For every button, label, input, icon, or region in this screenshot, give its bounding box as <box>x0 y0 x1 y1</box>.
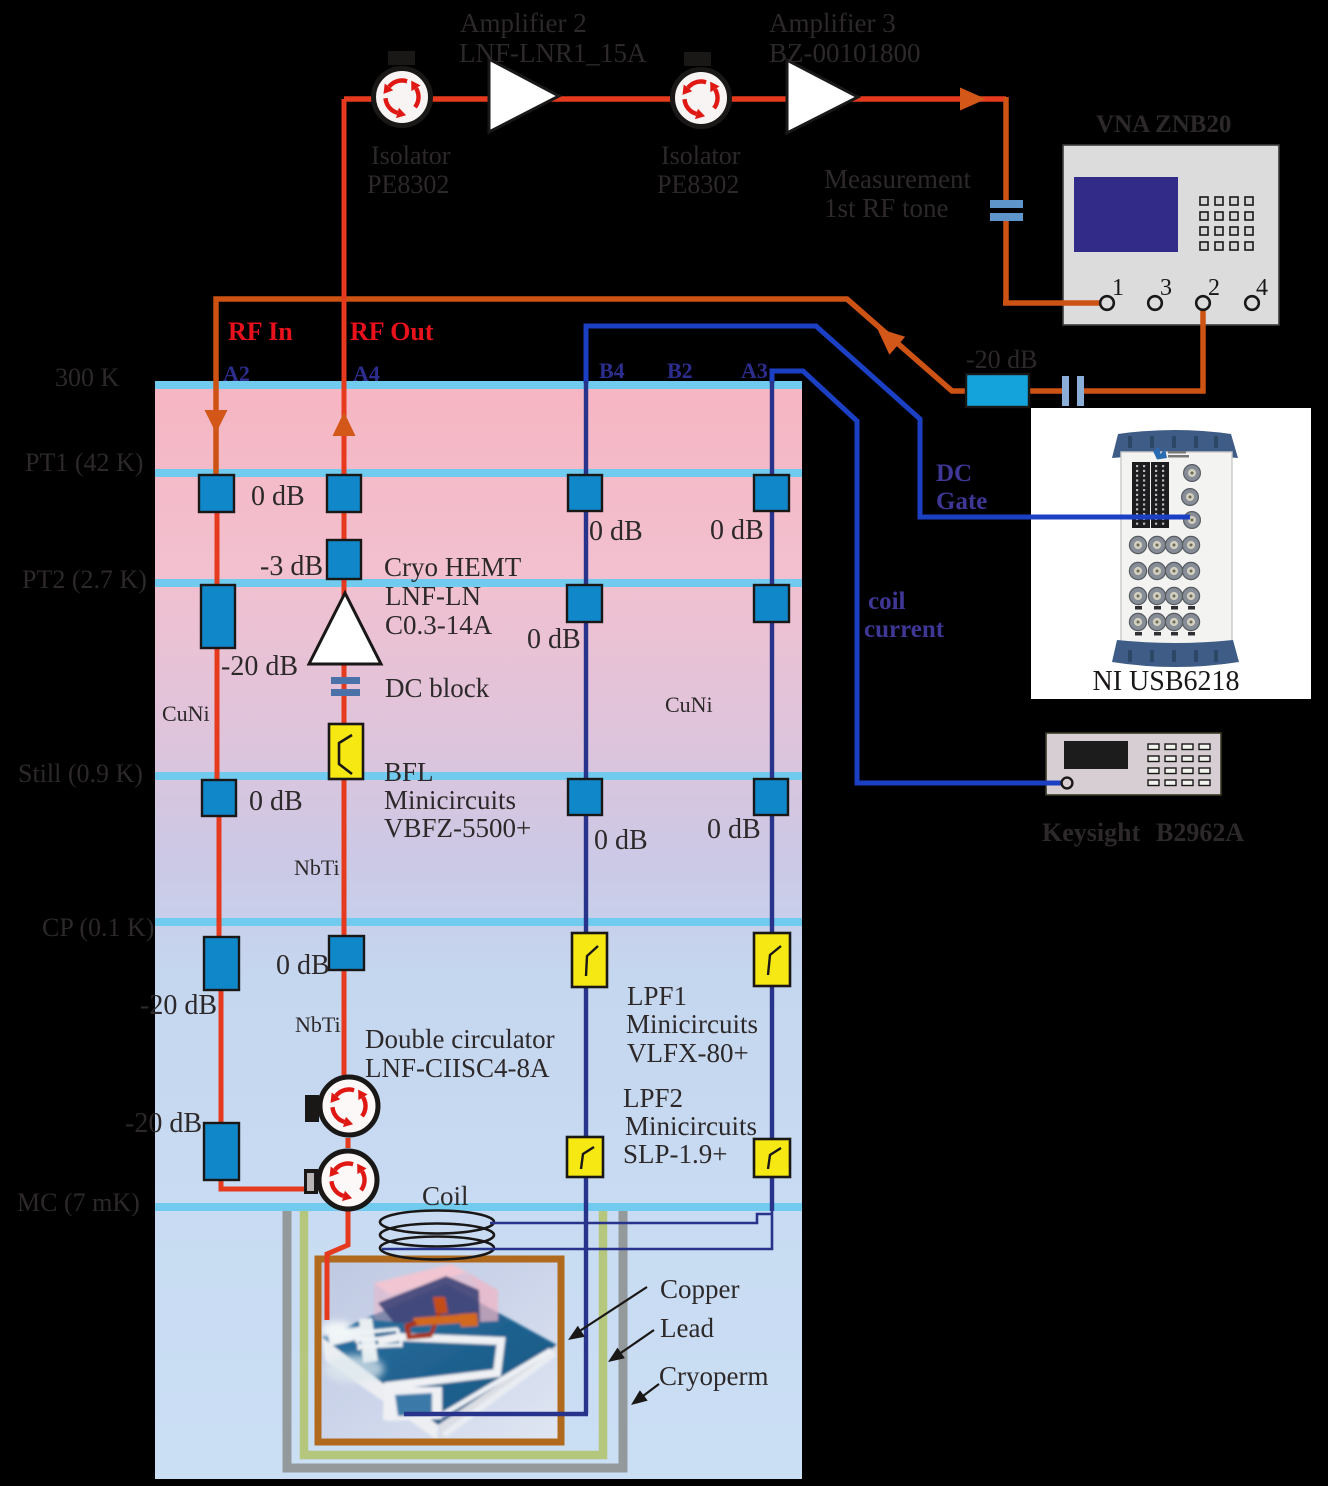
svg-text:PT1 (42 K): PT1 (42 K) <box>25 448 143 477</box>
svg-text:A3: A3 <box>741 358 768 383</box>
svg-text:Minicircuits: Minicircuits <box>384 785 516 815</box>
svg-text:Cryoperm: Cryoperm <box>659 1361 768 1391</box>
svg-text:current: current <box>864 616 945 643</box>
svg-text:-3 dB: -3 dB <box>260 551 323 582</box>
svg-text:-20 dB: -20 dB <box>140 990 217 1021</box>
svg-text:B2: B2 <box>667 358 693 383</box>
svg-text:Still (0.9 K): Still (0.9 K) <box>18 759 143 788</box>
svg-text:SLP-1.9+: SLP-1.9+ <box>623 1139 728 1169</box>
svg-text:BFL: BFL <box>384 757 434 787</box>
svg-text:Cryo HEMT: Cryo HEMT <box>384 552 522 582</box>
svg-text:-20 dB: -20 dB <box>221 651 298 682</box>
svg-text:-20 dB: -20 dB <box>966 345 1038 374</box>
svg-text:LNF-CIISC4-8A: LNF-CIISC4-8A <box>365 1053 550 1083</box>
svg-text:CuNi: CuNi <box>665 692 713 717</box>
svg-text:coil: coil <box>868 588 906 615</box>
svg-text:RF Out: RF Out <box>350 317 434 346</box>
svg-text:DC: DC <box>936 460 972 487</box>
svg-text:Amplifier 3: Amplifier 3 <box>769 8 896 38</box>
svg-text:Minicircuits: Minicircuits <box>625 1111 757 1141</box>
svg-text:VBFZ-5500+: VBFZ-5500+ <box>384 813 531 843</box>
svg-text:1: 1 <box>1112 275 1124 301</box>
svg-text:Gate: Gate <box>936 488 987 515</box>
svg-text:VLFX-80+: VLFX-80+ <box>627 1038 749 1068</box>
svg-text:VNA ZNB20: VNA ZNB20 <box>1096 111 1231 138</box>
svg-text:0 dB: 0 dB <box>251 481 305 512</box>
svg-text:PE8302: PE8302 <box>657 170 739 199</box>
svg-text:Keysight: Keysight <box>1042 818 1141 847</box>
svg-text:CP (0.1 K): CP (0.1 K) <box>42 913 154 942</box>
svg-text:A4: A4 <box>353 361 380 386</box>
svg-text:A2: A2 <box>223 361 250 386</box>
svg-text:0 dB: 0 dB <box>276 950 330 981</box>
svg-text:Isolator: Isolator <box>661 141 741 170</box>
svg-text:MC (7 mK): MC (7 mK) <box>17 1188 140 1217</box>
svg-text:Coil: Coil <box>422 1181 469 1211</box>
svg-text:LNF-LN: LNF-LN <box>385 581 481 611</box>
svg-text:0 dB: 0 dB <box>589 516 643 547</box>
svg-text:1st RF tone: 1st RF tone <box>824 193 949 223</box>
svg-text:0 dB: 0 dB <box>594 825 648 856</box>
svg-text:Copper: Copper <box>660 1274 739 1304</box>
svg-text:Minicircuits: Minicircuits <box>626 1009 758 1039</box>
svg-text:Measurement: Measurement <box>824 164 971 194</box>
svg-text:Double circulator: Double circulator <box>365 1024 555 1054</box>
svg-text:LNF-LNR1_15A: LNF-LNR1_15A <box>459 38 647 68</box>
svg-text:NbTi: NbTi <box>295 1012 341 1037</box>
svg-text:3: 3 <box>1160 275 1172 301</box>
svg-text:B2962A: B2962A <box>1156 818 1244 847</box>
svg-text:CuNi: CuNi <box>162 701 210 726</box>
svg-text:2: 2 <box>1208 275 1220 301</box>
svg-text:300 K: 300 K <box>55 363 120 392</box>
svg-text:NbTi: NbTi <box>294 855 340 880</box>
svg-text:0 dB: 0 dB <box>527 624 581 655</box>
svg-text:PT2 (2.7 K): PT2 (2.7 K) <box>22 565 147 594</box>
svg-text:B4: B4 <box>599 358 625 383</box>
svg-text:4: 4 <box>1256 275 1268 301</box>
svg-text:DC block: DC block <box>385 673 490 703</box>
svg-text:LPF2: LPF2 <box>623 1083 683 1113</box>
svg-text:Isolator: Isolator <box>371 141 451 170</box>
svg-text:0 dB: 0 dB <box>249 786 303 817</box>
svg-text:0 dB: 0 dB <box>707 814 761 845</box>
svg-text:-20 dB: -20 dB <box>125 1108 202 1139</box>
svg-text:BZ-00101800: BZ-00101800 <box>769 38 921 68</box>
svg-text:NI USB6218: NI USB6218 <box>1092 666 1239 697</box>
svg-text:PE8302: PE8302 <box>367 170 449 199</box>
svg-text:Amplifier 2: Amplifier 2 <box>460 8 587 38</box>
svg-text:0 dB: 0 dB <box>710 515 764 546</box>
svg-text:RF In: RF In <box>228 317 293 346</box>
svg-text:LPF1: LPF1 <box>627 981 687 1011</box>
svg-text:Lead: Lead <box>660 1313 714 1343</box>
svg-text:C0.3-14A: C0.3-14A <box>385 610 493 640</box>
